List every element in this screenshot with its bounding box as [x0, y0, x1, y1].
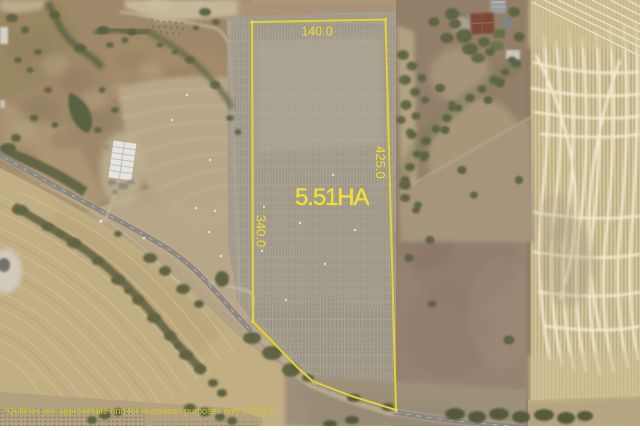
svg-text:340.0: 340.0	[254, 215, 269, 248]
svg-text:*Outlines are approximate and: *Outlines are approximate and for illust…	[4, 406, 277, 416]
svg-text:140.0: 140.0	[301, 25, 332, 39]
svg-text:5.51HA: 5.51HA	[295, 184, 370, 211]
svg-text:425.0: 425.0	[373, 146, 388, 179]
